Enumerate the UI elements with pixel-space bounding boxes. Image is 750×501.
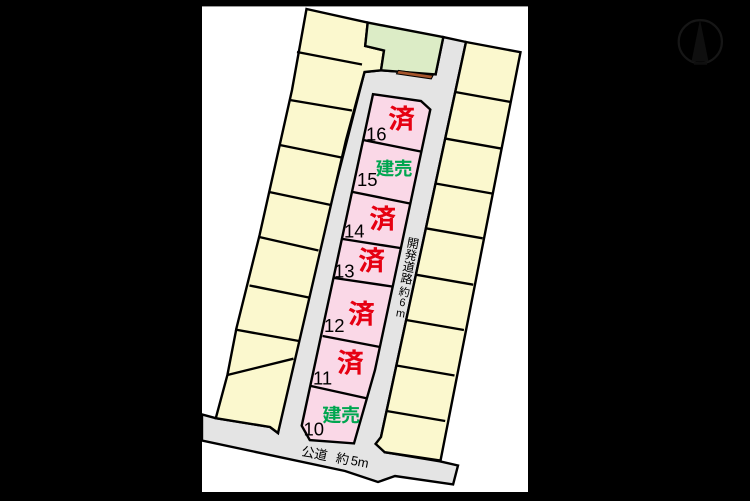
svg-text:11: 11 xyxy=(313,368,332,389)
svg-text:15: 15 xyxy=(357,169,378,190)
svg-text:12: 12 xyxy=(324,315,345,336)
svg-text:14: 14 xyxy=(344,221,365,242)
svg-text:16: 16 xyxy=(366,124,387,145)
svg-text:10: 10 xyxy=(304,419,325,440)
svg-text:13: 13 xyxy=(334,261,355,282)
